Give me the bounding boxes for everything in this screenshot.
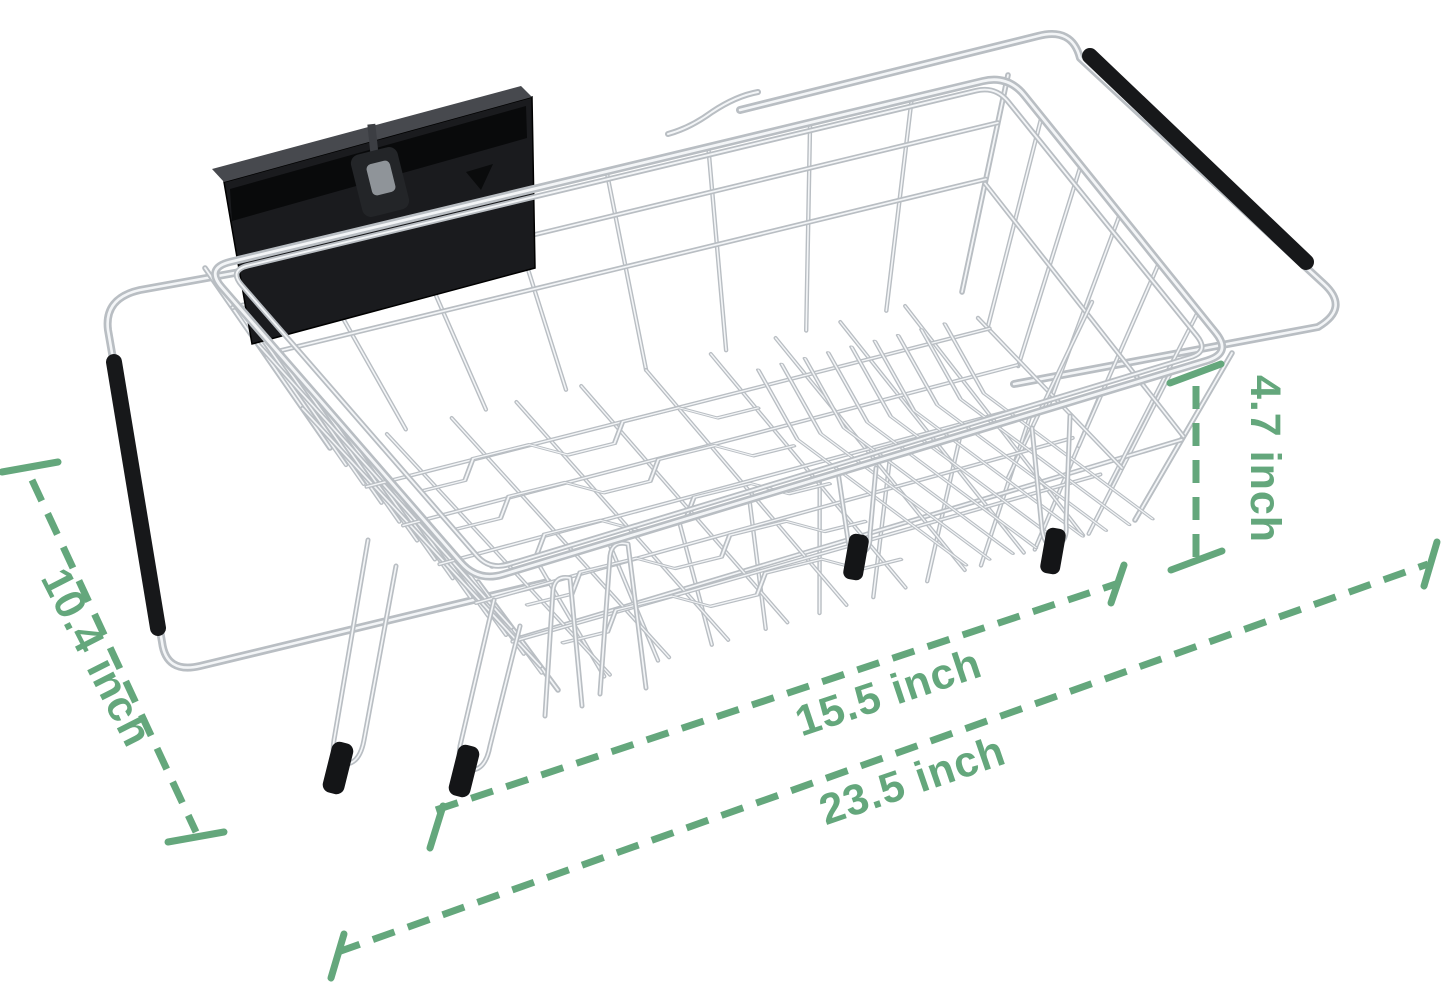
dimension-height: 4.7 inch [1170,364,1289,570]
foot-front-left [321,740,355,796]
dimension-depth: 10.4 inch [2,462,224,842]
dimension-label-height: 4.7 inch [1241,375,1289,543]
dish-rack-illustration: 10.4 inch 15.5 inch 23.5 inch 4.7 inch [0,0,1445,984]
extension-arms [108,34,1336,668]
product-dimension-diagram: 10.4 inch 15.5 inch 23.5 inch 4.7 inch [0,0,1445,984]
dimension-label-inner-length: 15.5 inch [789,639,987,746]
dimension-label-overall-length: 23.5 inch [813,727,1011,835]
dimension-label-depth: 10.4 inch [31,561,161,755]
